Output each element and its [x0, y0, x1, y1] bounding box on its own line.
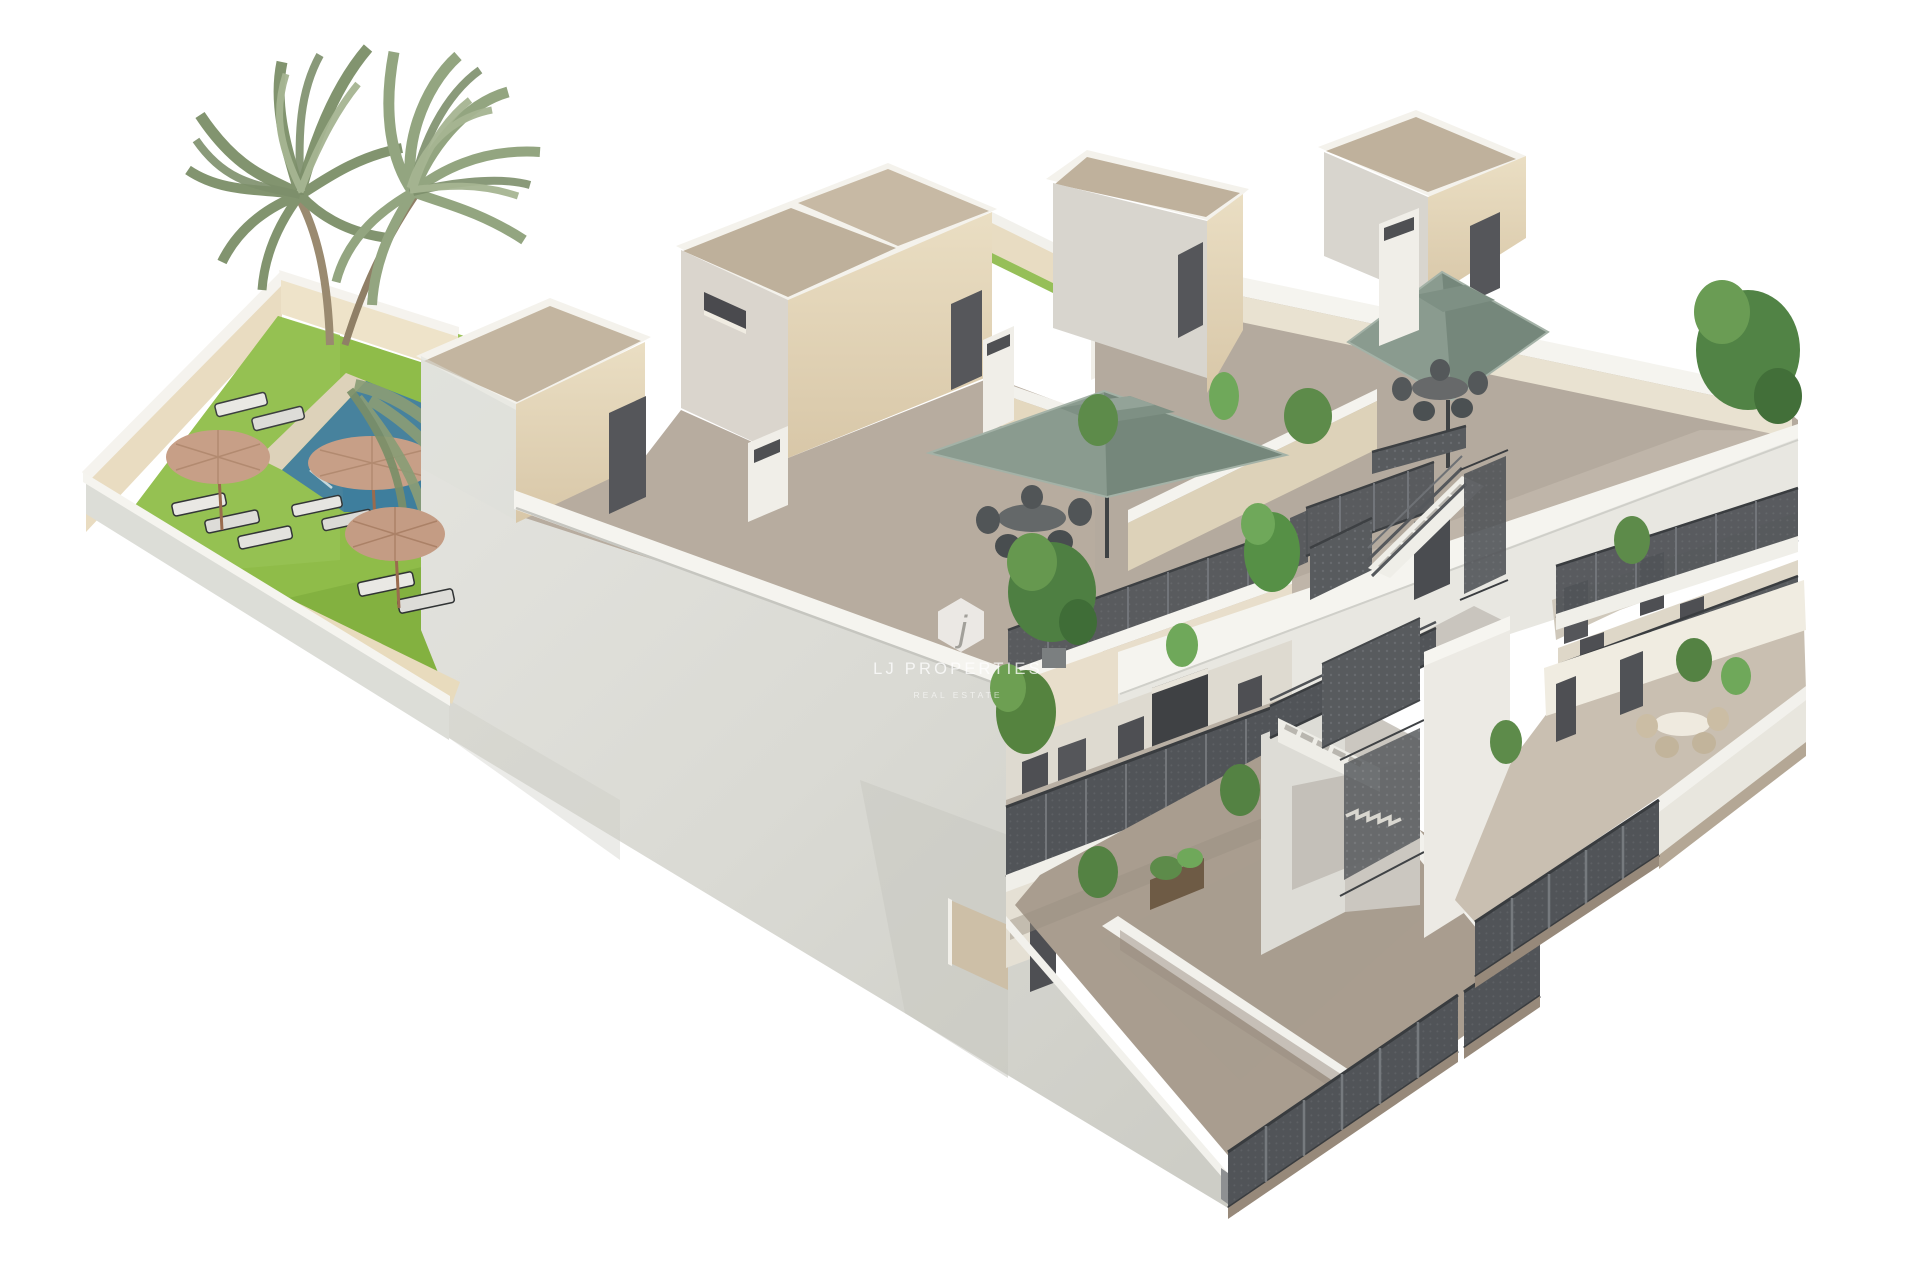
svg-text:LJ PROPERTIES: LJ PROPERTIES [873, 660, 1043, 678]
svg-text:REAL ESTATE: REAL ESTATE [913, 690, 1002, 700]
